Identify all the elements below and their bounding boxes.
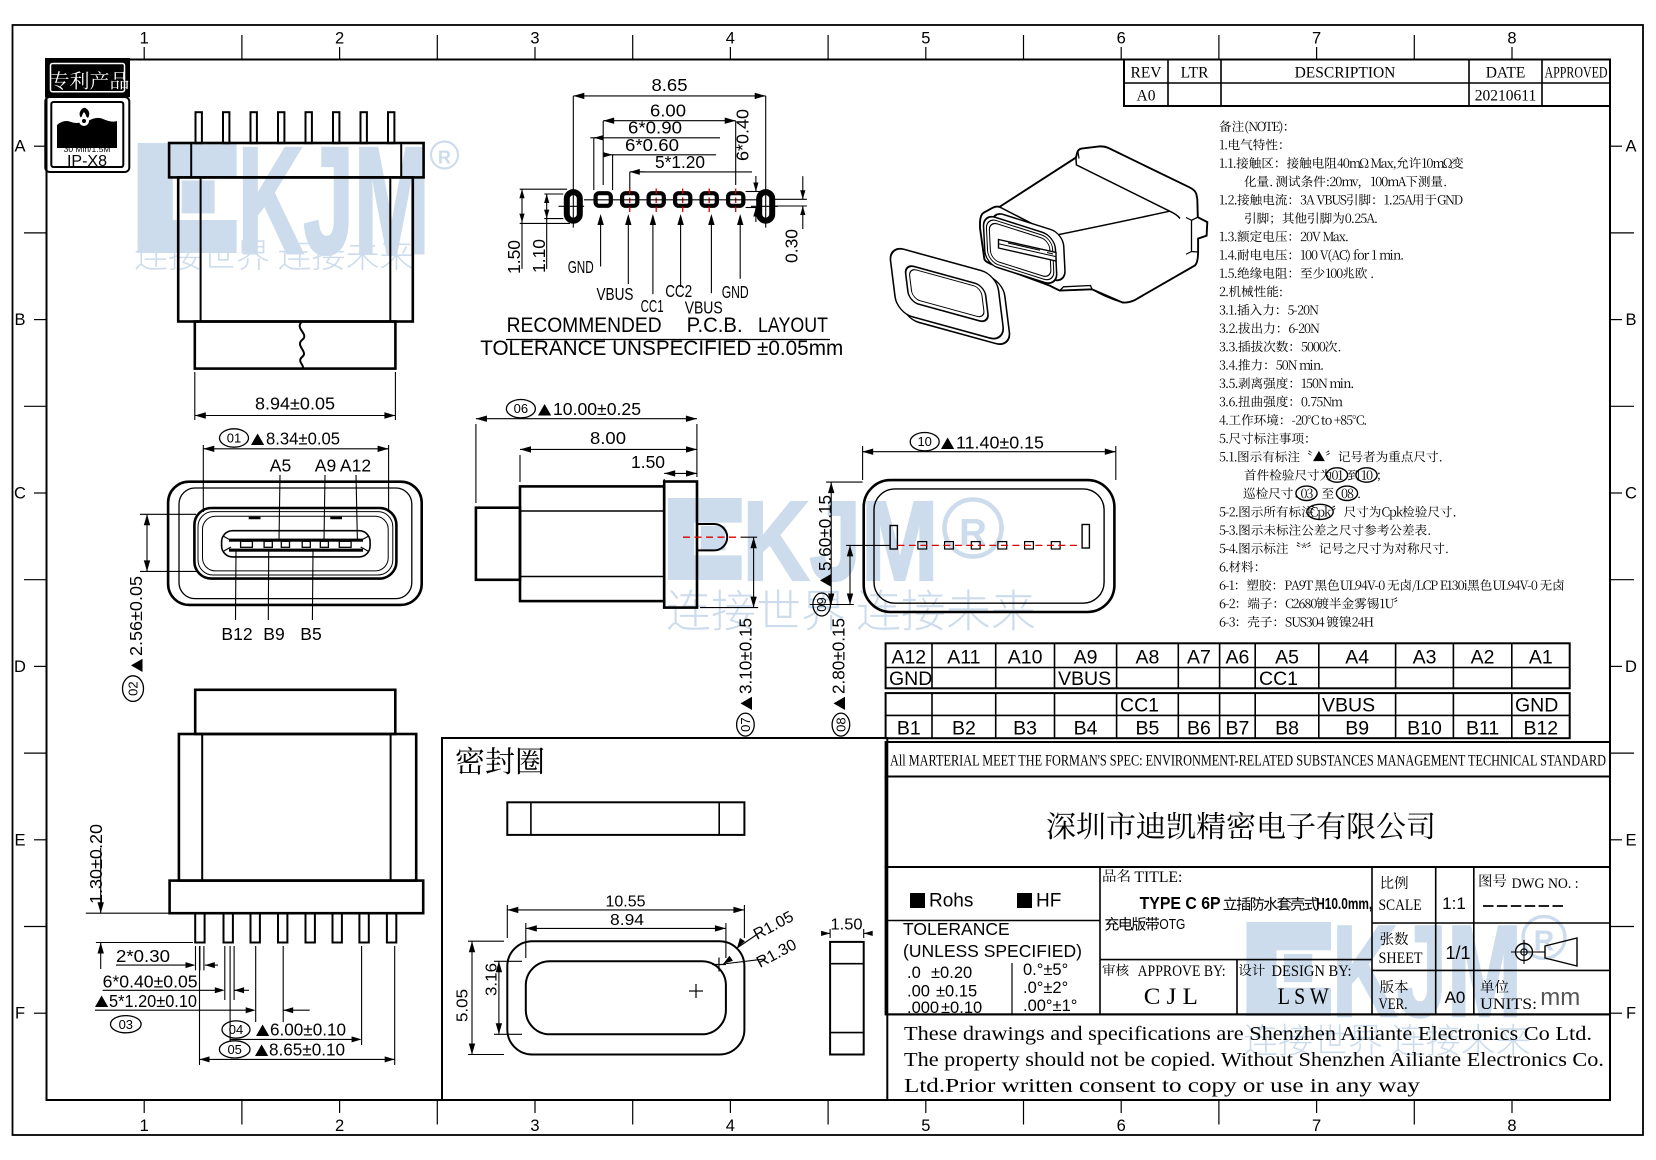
svg-text:B6: B6 <box>1187 718 1211 740</box>
svg-text:8.65±0.10: 8.65±0.10 <box>269 1040 345 1060</box>
svg-text:A12: A12 <box>340 456 371 476</box>
svg-text:A11: A11 <box>947 647 980 669</box>
svg-text:OTG: OTG <box>1159 917 1185 933</box>
svg-text:04: 04 <box>229 1022 243 1037</box>
svg-text:5: 5 <box>921 30 930 48</box>
svg-text:±0.10: ±0.10 <box>941 999 982 1017</box>
svg-text:2*0.30: 2*0.30 <box>116 946 170 966</box>
svg-text:P.C.B.: P.C.B. <box>687 314 743 337</box>
svg-text:6: 6 <box>1117 30 1126 48</box>
svg-text:TYPE C 6P: TYPE C 6P <box>1140 893 1221 913</box>
svg-text:E: E <box>1625 831 1636 849</box>
svg-text:6.00±0.10: 6.00±0.10 <box>270 1020 346 1040</box>
svg-text:07: 07 <box>738 717 753 731</box>
svg-text:mm: mm <box>1540 984 1580 1011</box>
svg-text:B12: B12 <box>221 624 252 644</box>
svg-text:5*1.20: 5*1.20 <box>655 152 705 172</box>
svg-text:10.00±0.25: 10.00±0.25 <box>553 399 641 419</box>
svg-text:DATE: DATE <box>1486 65 1526 82</box>
svg-text:L S W: L S W <box>1278 984 1329 1009</box>
svg-text:.0: .0 <box>907 964 921 982</box>
svg-text:LAYOUT: LAYOUT <box>758 314 828 337</box>
svg-text:D: D <box>1625 658 1637 676</box>
svg-text:RECOMMENDED: RECOMMENDED <box>507 314 662 337</box>
svg-text:A2: A2 <box>1471 647 1495 669</box>
svg-text:8.94±0.05: 8.94±0.05 <box>255 394 335 414</box>
svg-text:09: 09 <box>814 597 829 611</box>
svg-text:APPROVED: APPROVED <box>1545 65 1608 82</box>
svg-text:B11: B11 <box>1466 718 1499 740</box>
svg-text:VBUS: VBUS <box>597 284 634 304</box>
svg-text:B12: B12 <box>1523 718 1558 740</box>
svg-text:20210611: 20210611 <box>1475 88 1536 105</box>
svg-text:B9: B9 <box>263 624 284 644</box>
svg-text:REV: REV <box>1131 65 1163 82</box>
svg-text:These drawings and specificati: These drawings and specifications are Sh… <box>904 1023 1592 1045</box>
svg-text:1: 1 <box>140 1117 149 1135</box>
svg-text:1: 1 <box>140 30 149 48</box>
svg-text:D: D <box>14 658 26 676</box>
svg-text:All MARTERIAL MEET THE FORMAN': All MARTERIAL MEET THE FORMAN'S SPEC: EN… <box>890 753 1606 770</box>
svg-text:11.40±0.15: 11.40±0.15 <box>956 433 1044 453</box>
svg-text:A5: A5 <box>270 456 291 476</box>
svg-text:8: 8 <box>1507 1117 1516 1135</box>
svg-text:R: R <box>438 147 451 167</box>
svg-text:(UNLESS SPECIFIED): (UNLESS SPECIFIED) <box>903 941 1082 961</box>
svg-text:8.65: 8.65 <box>652 75 688 95</box>
svg-text:CC1: CC1 <box>641 296 664 316</box>
svg-text:8.00: 8.00 <box>590 428 626 448</box>
svg-text:R: R <box>959 512 987 555</box>
svg-text:UNITS:: UNITS: <box>1480 996 1537 1013</box>
svg-text:GND: GND <box>889 668 932 690</box>
svg-text:B: B <box>14 311 25 329</box>
svg-text:APPROVE BY:: APPROVE BY: <box>1138 963 1226 980</box>
svg-text:A10: A10 <box>1008 647 1043 669</box>
svg-text:B8: B8 <box>1275 718 1299 740</box>
svg-text:.000: .000 <box>907 999 939 1017</box>
svg-text:.00°±1°: .00°±1° <box>1023 997 1077 1015</box>
svg-text:A5: A5 <box>1275 647 1299 669</box>
svg-text:F: F <box>15 1005 25 1023</box>
svg-text:1.30±0.20: 1.30±0.20 <box>86 824 106 904</box>
svg-text:A8: A8 <box>1135 647 1159 669</box>
svg-text:A9: A9 <box>315 456 336 476</box>
svg-text:03: 03 <box>119 1017 133 1032</box>
svg-text:R: R <box>1534 926 1554 958</box>
svg-text:TITLE:: TITLE: <box>1134 869 1182 886</box>
svg-text:DESCRIPTION: DESCRIPTION <box>1295 65 1396 82</box>
svg-text:A: A <box>14 138 25 156</box>
svg-text:B5: B5 <box>1135 718 1159 740</box>
svg-text:GND: GND <box>722 282 749 302</box>
svg-text:10.55: 10.55 <box>606 894 646 911</box>
svg-text:4: 4 <box>726 1117 735 1135</box>
svg-text:KJM: KJM <box>743 478 939 604</box>
svg-text:06: 06 <box>514 401 528 416</box>
svg-text:GND: GND <box>568 257 594 277</box>
svg-text:H10.0mm,: H10.0mm, <box>1316 896 1372 913</box>
svg-text:B2: B2 <box>952 718 976 740</box>
svg-text:F: F <box>1626 1005 1636 1023</box>
svg-text:0.°±5°: 0.°±5° <box>1023 961 1068 979</box>
svg-text:B4: B4 <box>1074 718 1098 740</box>
svg-text:8: 8 <box>1507 30 1516 48</box>
svg-text:VBUS: VBUS <box>1322 695 1375 717</box>
svg-text:E: E <box>14 831 25 849</box>
svg-text:.0°±2°: .0°±2° <box>1023 979 1068 997</box>
svg-text:2.80±0.15: 2.80±0.15 <box>829 618 849 694</box>
svg-text:1.10: 1.10 <box>529 239 549 273</box>
svg-text:B10: B10 <box>1407 718 1442 740</box>
svg-text:02: 02 <box>126 681 141 695</box>
svg-text:VER.: VER. <box>1379 996 1408 1013</box>
svg-text:TOLERANCE UNSPECIFIED ±0.05mm: TOLERANCE UNSPECIFIED ±0.05mm <box>480 337 843 360</box>
svg-text:A4: A4 <box>1345 647 1369 669</box>
svg-text:2: 2 <box>335 30 344 48</box>
svg-text:Ltd.Prior written consent to c: Ltd.Prior written consent to copy or use… <box>904 1075 1421 1097</box>
svg-text:3.10±0.15: 3.10±0.15 <box>736 618 756 694</box>
svg-text:A0: A0 <box>1445 988 1466 1007</box>
svg-text:VBUS: VBUS <box>1058 668 1111 690</box>
svg-text:LTR: LTR <box>1181 65 1210 82</box>
svg-text:7: 7 <box>1312 30 1321 48</box>
svg-text:A: A <box>1625 138 1636 156</box>
svg-text:TOLERANCE: TOLERANCE <box>903 919 1010 939</box>
svg-text:8.34±0.05: 8.34±0.05 <box>266 429 340 449</box>
svg-text:A6: A6 <box>1225 647 1249 669</box>
svg-text:GND: GND <box>1515 695 1558 717</box>
svg-text:1/1: 1/1 <box>1445 943 1470 963</box>
svg-text:6*0.40±0.05: 6*0.40±0.05 <box>103 972 198 992</box>
svg-text:HF: HF <box>1036 891 1061 912</box>
svg-text:DESIGN BY:: DESIGN BY: <box>1272 963 1352 980</box>
svg-text:3: 3 <box>530 30 539 48</box>
svg-text:C J L: C J L <box>1144 984 1198 1009</box>
svg-text:8.94: 8.94 <box>610 912 644 929</box>
svg-text:1.50: 1.50 <box>831 917 863 934</box>
svg-text:5*1.20±0.10: 5*1.20±0.10 <box>109 991 197 1011</box>
svg-text:B7: B7 <box>1225 718 1249 740</box>
svg-text:6*0.40: 6*0.40 <box>733 109 753 161</box>
svg-text:±0.20: ±0.20 <box>931 964 972 982</box>
svg-text:10: 10 <box>917 434 931 449</box>
svg-text:0.30: 0.30 <box>782 229 802 263</box>
svg-text:05: 05 <box>227 1042 241 1057</box>
svg-text:A0: A0 <box>1137 88 1156 105</box>
svg-text:08: 08 <box>833 717 848 731</box>
svg-text:CC1: CC1 <box>1120 695 1159 717</box>
svg-text:A1: A1 <box>1529 647 1553 669</box>
svg-text:B3: B3 <box>1013 718 1037 740</box>
svg-text:1:1: 1:1 <box>1442 894 1466 913</box>
svg-text:SHEET: SHEET <box>1379 950 1423 967</box>
svg-text:Rohs: Rohs <box>929 891 973 912</box>
svg-text:The property should not be cop: The property should not be copied. Witho… <box>904 1049 1604 1071</box>
svg-text:7: 7 <box>1312 1117 1321 1135</box>
svg-text:B: B <box>1625 311 1636 329</box>
svg-text:A3: A3 <box>1413 647 1437 669</box>
svg-text:A7: A7 <box>1187 647 1211 669</box>
svg-text:CC1: CC1 <box>1259 668 1298 690</box>
svg-text:2.56±0.05: 2.56±0.05 <box>126 576 146 656</box>
svg-text:DWG NO. :: DWG NO. : <box>1512 876 1579 892</box>
svg-text:2: 2 <box>335 1117 344 1135</box>
svg-text:A12: A12 <box>891 647 926 669</box>
svg-text:4: 4 <box>726 30 735 48</box>
svg-text:.00: .00 <box>907 983 930 1001</box>
svg-text:1.50: 1.50 <box>504 240 524 274</box>
svg-text:5.05: 5.05 <box>455 989 472 1022</box>
svg-text:6: 6 <box>1117 1117 1126 1135</box>
svg-text:1.50: 1.50 <box>631 452 665 472</box>
svg-text:3: 3 <box>530 1117 539 1135</box>
svg-text:B5: B5 <box>300 624 321 644</box>
svg-text:5.60±0.15: 5.60±0.15 <box>815 495 835 571</box>
svg-text:C: C <box>14 485 26 503</box>
svg-text:±0.15: ±0.15 <box>936 983 977 1001</box>
svg-text:IP-X8: IP-X8 <box>67 153 107 170</box>
svg-text:A9: A9 <box>1074 647 1098 669</box>
svg-text:01: 01 <box>227 431 241 446</box>
svg-text:C: C <box>1625 485 1637 503</box>
svg-text:SCALE: SCALE <box>1379 897 1422 914</box>
svg-text:5: 5 <box>921 1117 930 1135</box>
svg-text:B9: B9 <box>1345 718 1369 740</box>
svg-text:B1: B1 <box>897 718 921 740</box>
